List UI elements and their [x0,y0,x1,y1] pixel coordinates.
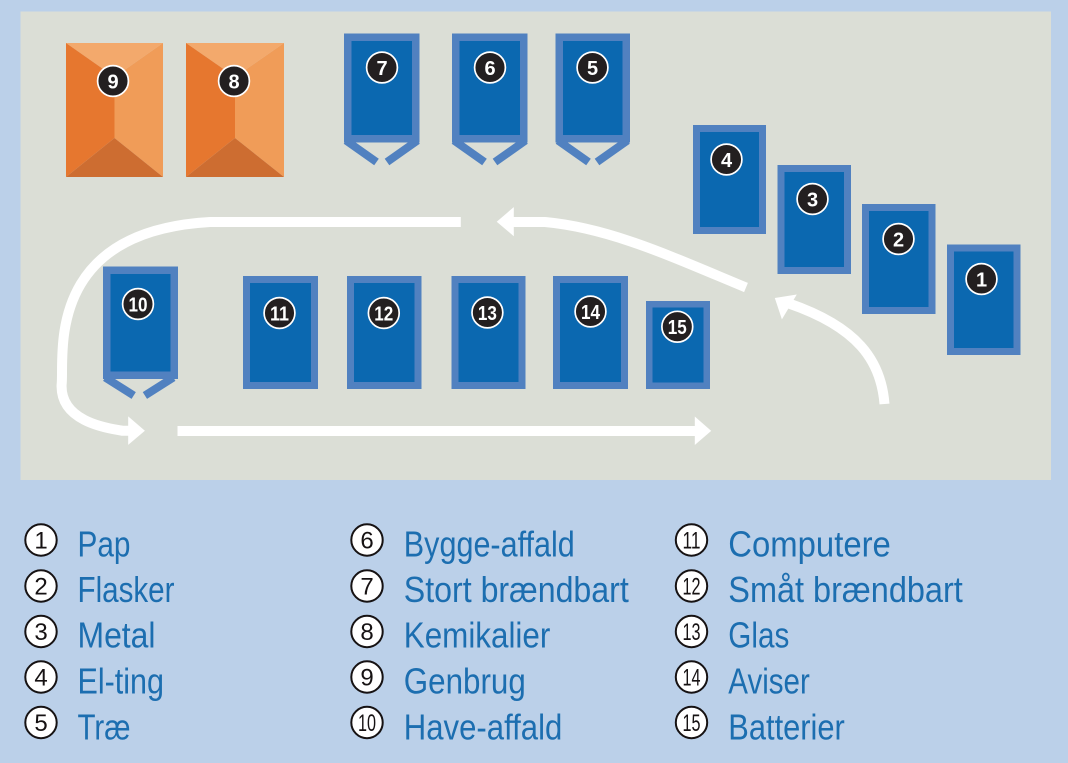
svg-text:2: 2 [34,573,47,600]
svg-text:Træ: Træ [78,707,131,748]
svg-text:9: 9 [107,72,118,94]
svg-text:Batterier: Batterier [728,707,845,748]
svg-text:Glas: Glas [728,615,789,656]
svg-text:13: 13 [683,619,701,646]
svg-text:8: 8 [228,72,239,94]
svg-text:1: 1 [976,270,987,292]
svg-text:Computere: Computere [728,524,891,565]
svg-text:5: 5 [34,710,47,737]
svg-text:Stort brændbart: Stort brændbart [404,569,629,610]
svg-text:12: 12 [374,304,393,326]
svg-text:14: 14 [683,664,701,691]
svg-text:Aviser: Aviser [728,661,810,702]
svg-text:10: 10 [129,295,148,317]
svg-text:Genbrug: Genbrug [404,661,526,702]
svg-text:Småt brændbart: Småt brændbart [728,569,963,610]
svg-text:Kemikalier: Kemikalier [404,615,551,656]
svg-text:6: 6 [360,527,373,554]
svg-text:11: 11 [270,304,289,326]
svg-text:8: 8 [360,619,373,646]
svg-text:15: 15 [668,317,687,339]
svg-text:Metal: Metal [78,615,156,656]
svg-text:11: 11 [683,527,701,554]
svg-text:14: 14 [581,302,601,324]
svg-text:7: 7 [376,58,387,80]
svg-text:5: 5 [587,58,598,80]
svg-text:15: 15 [683,710,701,737]
svg-text:Pap: Pap [78,524,131,565]
svg-text:1: 1 [34,527,47,554]
svg-text:El-ting: El-ting [78,661,165,702]
svg-text:4: 4 [721,150,733,172]
svg-text:6: 6 [484,58,495,80]
svg-text:3: 3 [807,190,818,212]
svg-text:Flasker: Flasker [78,569,175,610]
svg-text:7: 7 [360,573,373,600]
svg-text:Bygge-affald: Bygge-affald [404,524,575,565]
svg-text:4: 4 [34,664,47,691]
svg-text:12: 12 [683,573,701,600]
svg-text:2: 2 [893,230,904,252]
svg-text:13: 13 [478,303,497,325]
svg-text:10: 10 [358,710,376,737]
svg-text:Have-affald: Have-affald [404,707,563,748]
svg-text:9: 9 [360,664,373,691]
svg-text:3: 3 [34,619,47,646]
